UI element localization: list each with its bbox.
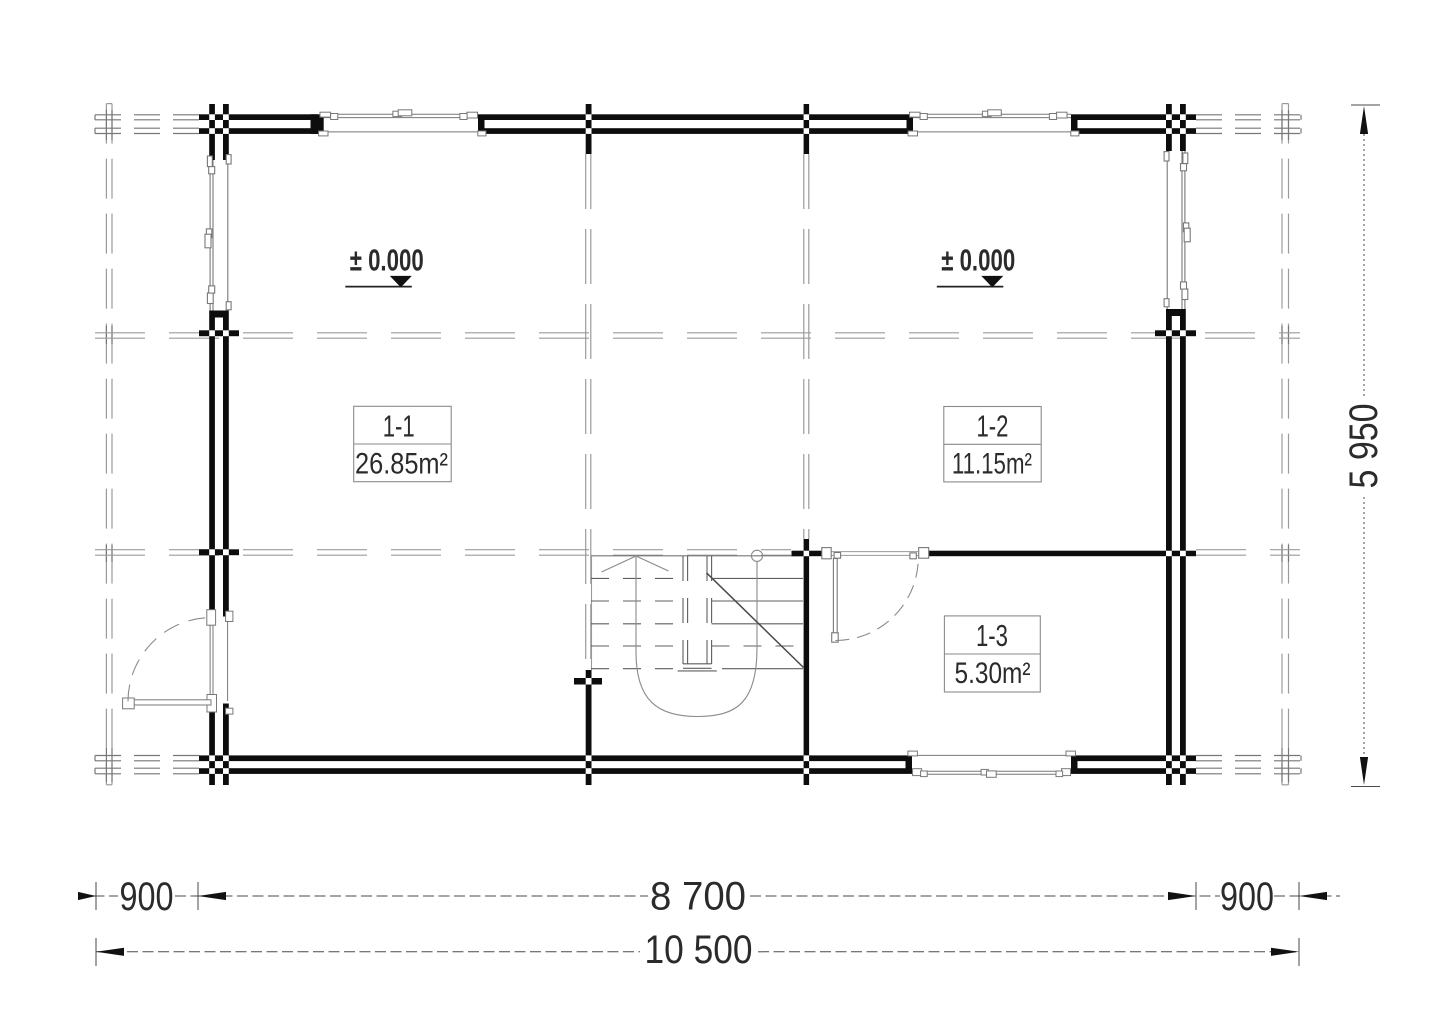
svg-text:900: 900 (1220, 875, 1274, 919)
svg-text:10 500: 10 500 (645, 928, 753, 972)
svg-text:26.85m²: 26.85m² (355, 447, 448, 480)
svg-text:± 0.000: ± 0.000 (350, 243, 424, 278)
svg-text:1-2: 1-2 (977, 408, 1009, 443)
svg-text:900: 900 (120, 875, 174, 919)
svg-text:± 0.000: ± 0.000 (941, 243, 1015, 278)
svg-text:8 700: 8 700 (650, 875, 746, 919)
svg-text:5 950: 5 950 (1342, 404, 1386, 489)
svg-text:1-1: 1-1 (383, 408, 415, 443)
svg-text:5.30m²: 5.30m² (955, 657, 1031, 690)
svg-text:1-3: 1-3 (976, 618, 1008, 653)
svg-text:11.15m²: 11.15m² (952, 447, 1032, 480)
